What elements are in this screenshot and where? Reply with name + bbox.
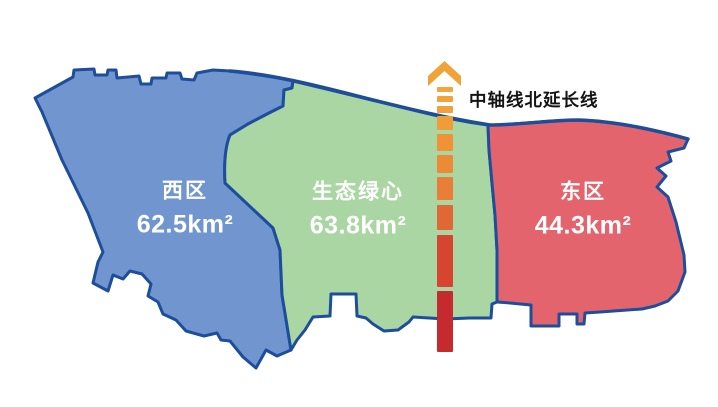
axis-dash (437, 134, 453, 151)
east-district-area: 44.3km² (535, 211, 632, 241)
east-district-name: 东区 (535, 180, 632, 206)
axis-dashes (437, 87, 453, 352)
axis-arrow-icon (428, 61, 461, 86)
axis-dash (437, 155, 453, 173)
green-heart-area: 63.8km² (310, 211, 407, 241)
axis-label: 中轴线北延长线 (469, 87, 599, 112)
west-district-name: 西区 (137, 179, 234, 205)
axis-dash (437, 106, 453, 113)
axis-dash (437, 291, 453, 352)
green-heart-label: 生态绿心 63.8km² (310, 180, 407, 241)
west-district-label: 西区 62.5km² (137, 179, 234, 240)
axis-dash (437, 235, 453, 287)
axis-dash (437, 96, 453, 102)
district-map: 西区 62.5km² 生态绿心 63.8km² 东区 44.3km² 中轴线北延… (0, 0, 718, 407)
axis-dash (437, 87, 453, 92)
axis-dash (437, 205, 453, 230)
green-heart-name: 生态绿心 (310, 180, 407, 206)
axis-dash (437, 116, 453, 130)
west-district-area: 62.5km² (137, 210, 234, 240)
east-district-label: 东区 44.3km² (535, 180, 632, 241)
axis-dash (437, 177, 453, 200)
